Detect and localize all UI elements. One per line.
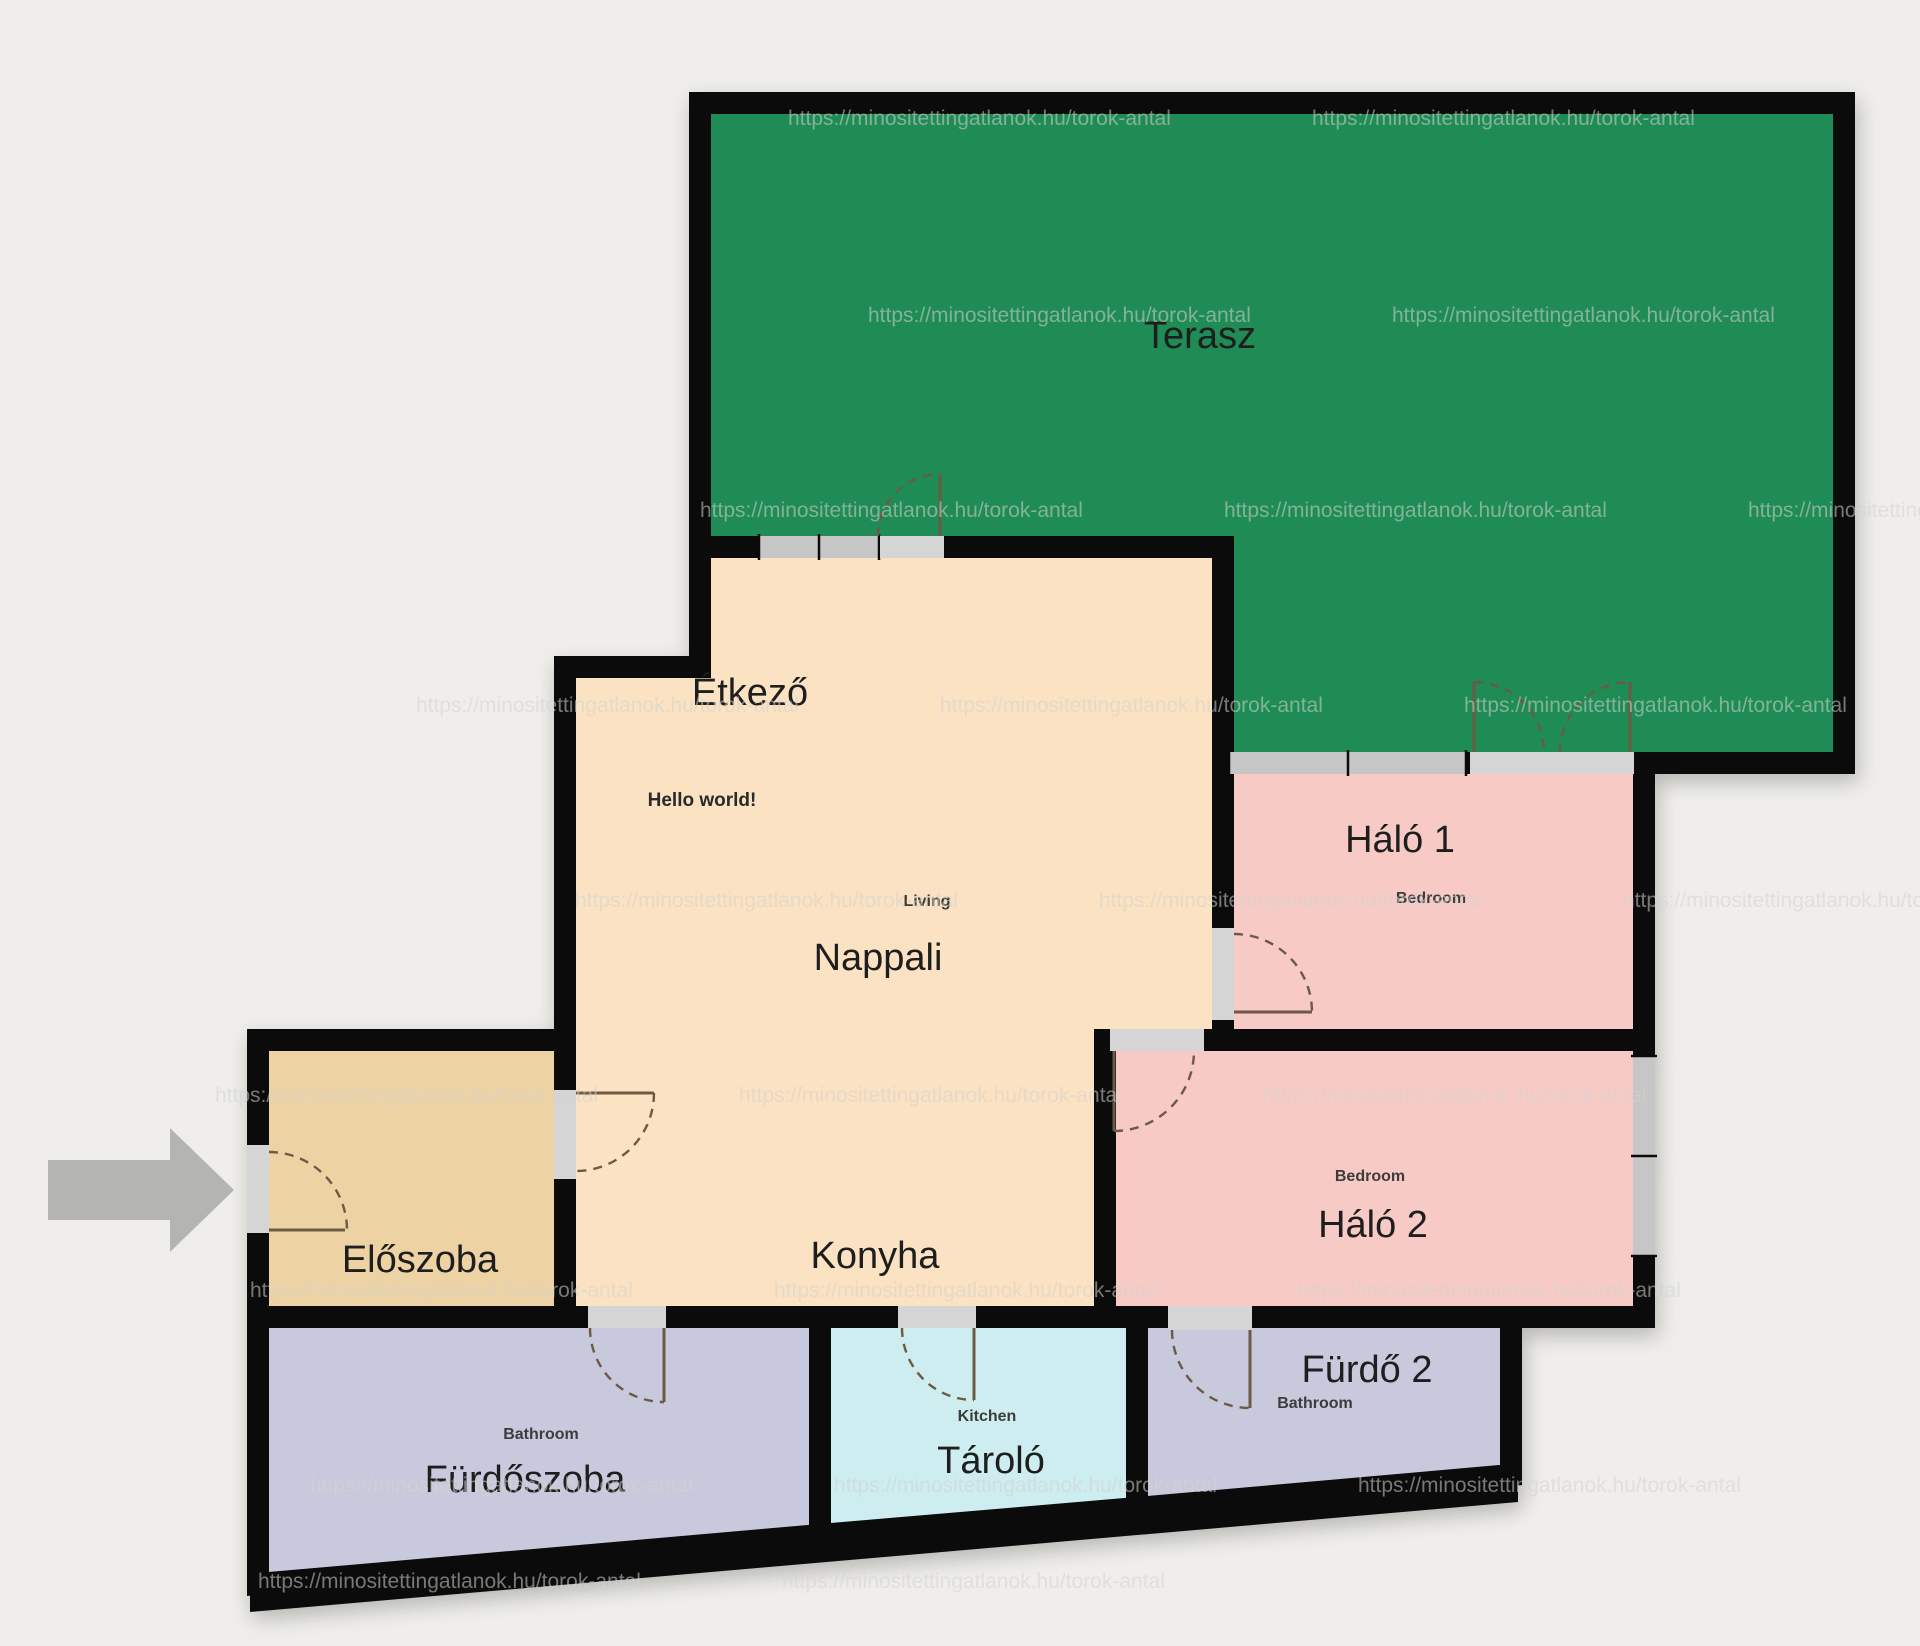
window-etkezo-terasz [759,534,879,560]
watermark-text: https://minositettingatlanok.hu/torok-an… [788,107,1171,130]
watermark-text: https://minositettingatlanok.hu/torok-an… [940,694,1323,717]
watermark-text: https://minositettingatlanok.hu/torok-an… [1312,107,1695,130]
label-konyha: Konyha [811,1235,941,1277]
watermark-text: https://minositettingatlanok.hu/torok-an… [1224,499,1607,522]
watermark-text: https://minositettingatlanok.hu/torok-an… [1298,1279,1681,1302]
label-eloszoba: Előszoba [342,1239,499,1281]
label-bedroom2-en: Bedroom [1335,1168,1405,1185]
watermark-text: https://minositettingatlanok.hu/torok-an… [416,694,799,717]
floor-plan-canvas: Terasz Étkező Hello world! Living Nappal… [0,0,1920,1646]
label-bathroom-en: Bathroom [503,1426,579,1443]
watermark-text: https://minositettingatlanok.hu/torok-an… [215,1084,598,1107]
watermark-text: https://minositettingatlanok.hu/torok-an… [1263,1084,1646,1107]
watermark-text: https://minositettingatlanok.hu/torok-an… [834,1474,1217,1497]
room-furdoszoba [258,1317,820,1584]
label-halo1: Háló 1 [1345,819,1455,861]
window-halo1-terasz [1229,750,1466,776]
label-hello-world: Hello world! [648,790,757,811]
label-furdo2: Fürdő 2 [1302,1349,1433,1391]
watermark-text: https://minositettingatlanok.hu/torok-an… [258,1570,641,1593]
floor-plan-page: Terasz Étkező Hello world! Living Nappal… [0,0,1920,1646]
watermark-text: https://minositettingatlanok.hu/torok-an… [1392,304,1775,327]
label-halo2: Háló 2 [1318,1204,1428,1246]
watermark-text: https://minositettingatlanok.hu/torok-an… [310,1474,693,1497]
watermark-text: https://minositettingatlanok.hu/torok-an… [774,1279,1157,1302]
watermark-text: https://minositettingatlanok.hu/torok-an… [1623,889,1920,912]
watermark-text: https://minositettingatlanok.hu/torok-an… [1748,499,1920,522]
watermark-text: https://minositettingatlanok.hu/torok-an… [739,1084,1122,1107]
watermark-text: https://minositettingatlanok.hu/torok-an… [575,889,958,912]
watermark-text: https://minositettingatlanok.hu/torok-an… [1464,694,1847,717]
watermark-text: https://minositettingatlanok.hu/torok-an… [1099,889,1482,912]
watermark-text: https://minositettingatlanok.hu/torok-an… [250,1279,633,1302]
watermark-text: https://minositettingatlanok.hu/torok-an… [700,499,1083,522]
watermark-text: https://minositettingatlanok.hu/torok-an… [868,304,1251,327]
label-bathroom2-en: Bathroom [1277,1395,1353,1412]
room-tarolo [820,1317,1137,1535]
label-nappali: Nappali [814,937,943,979]
watermark-text: https://minositettingatlanok.hu/torok-an… [1358,1474,1741,1497]
watermark-text: https://minositettingatlanok.hu/torok-an… [782,1570,1165,1593]
label-kitchen-en: Kitchen [958,1408,1017,1425]
